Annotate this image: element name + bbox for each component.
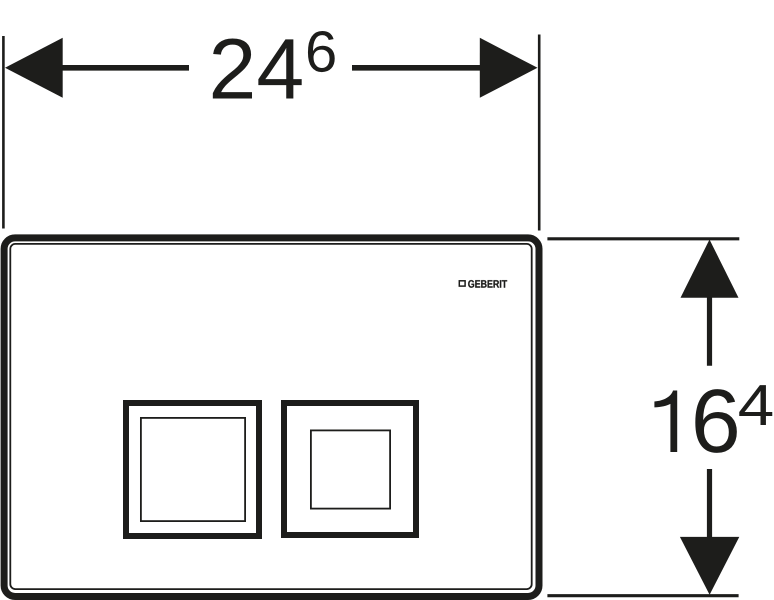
svg-text:6: 6	[305, 19, 337, 84]
svg-text:4: 4	[738, 373, 774, 438]
svg-text:6: 6	[691, 372, 741, 472]
svg-text:24: 24	[209, 21, 305, 117]
